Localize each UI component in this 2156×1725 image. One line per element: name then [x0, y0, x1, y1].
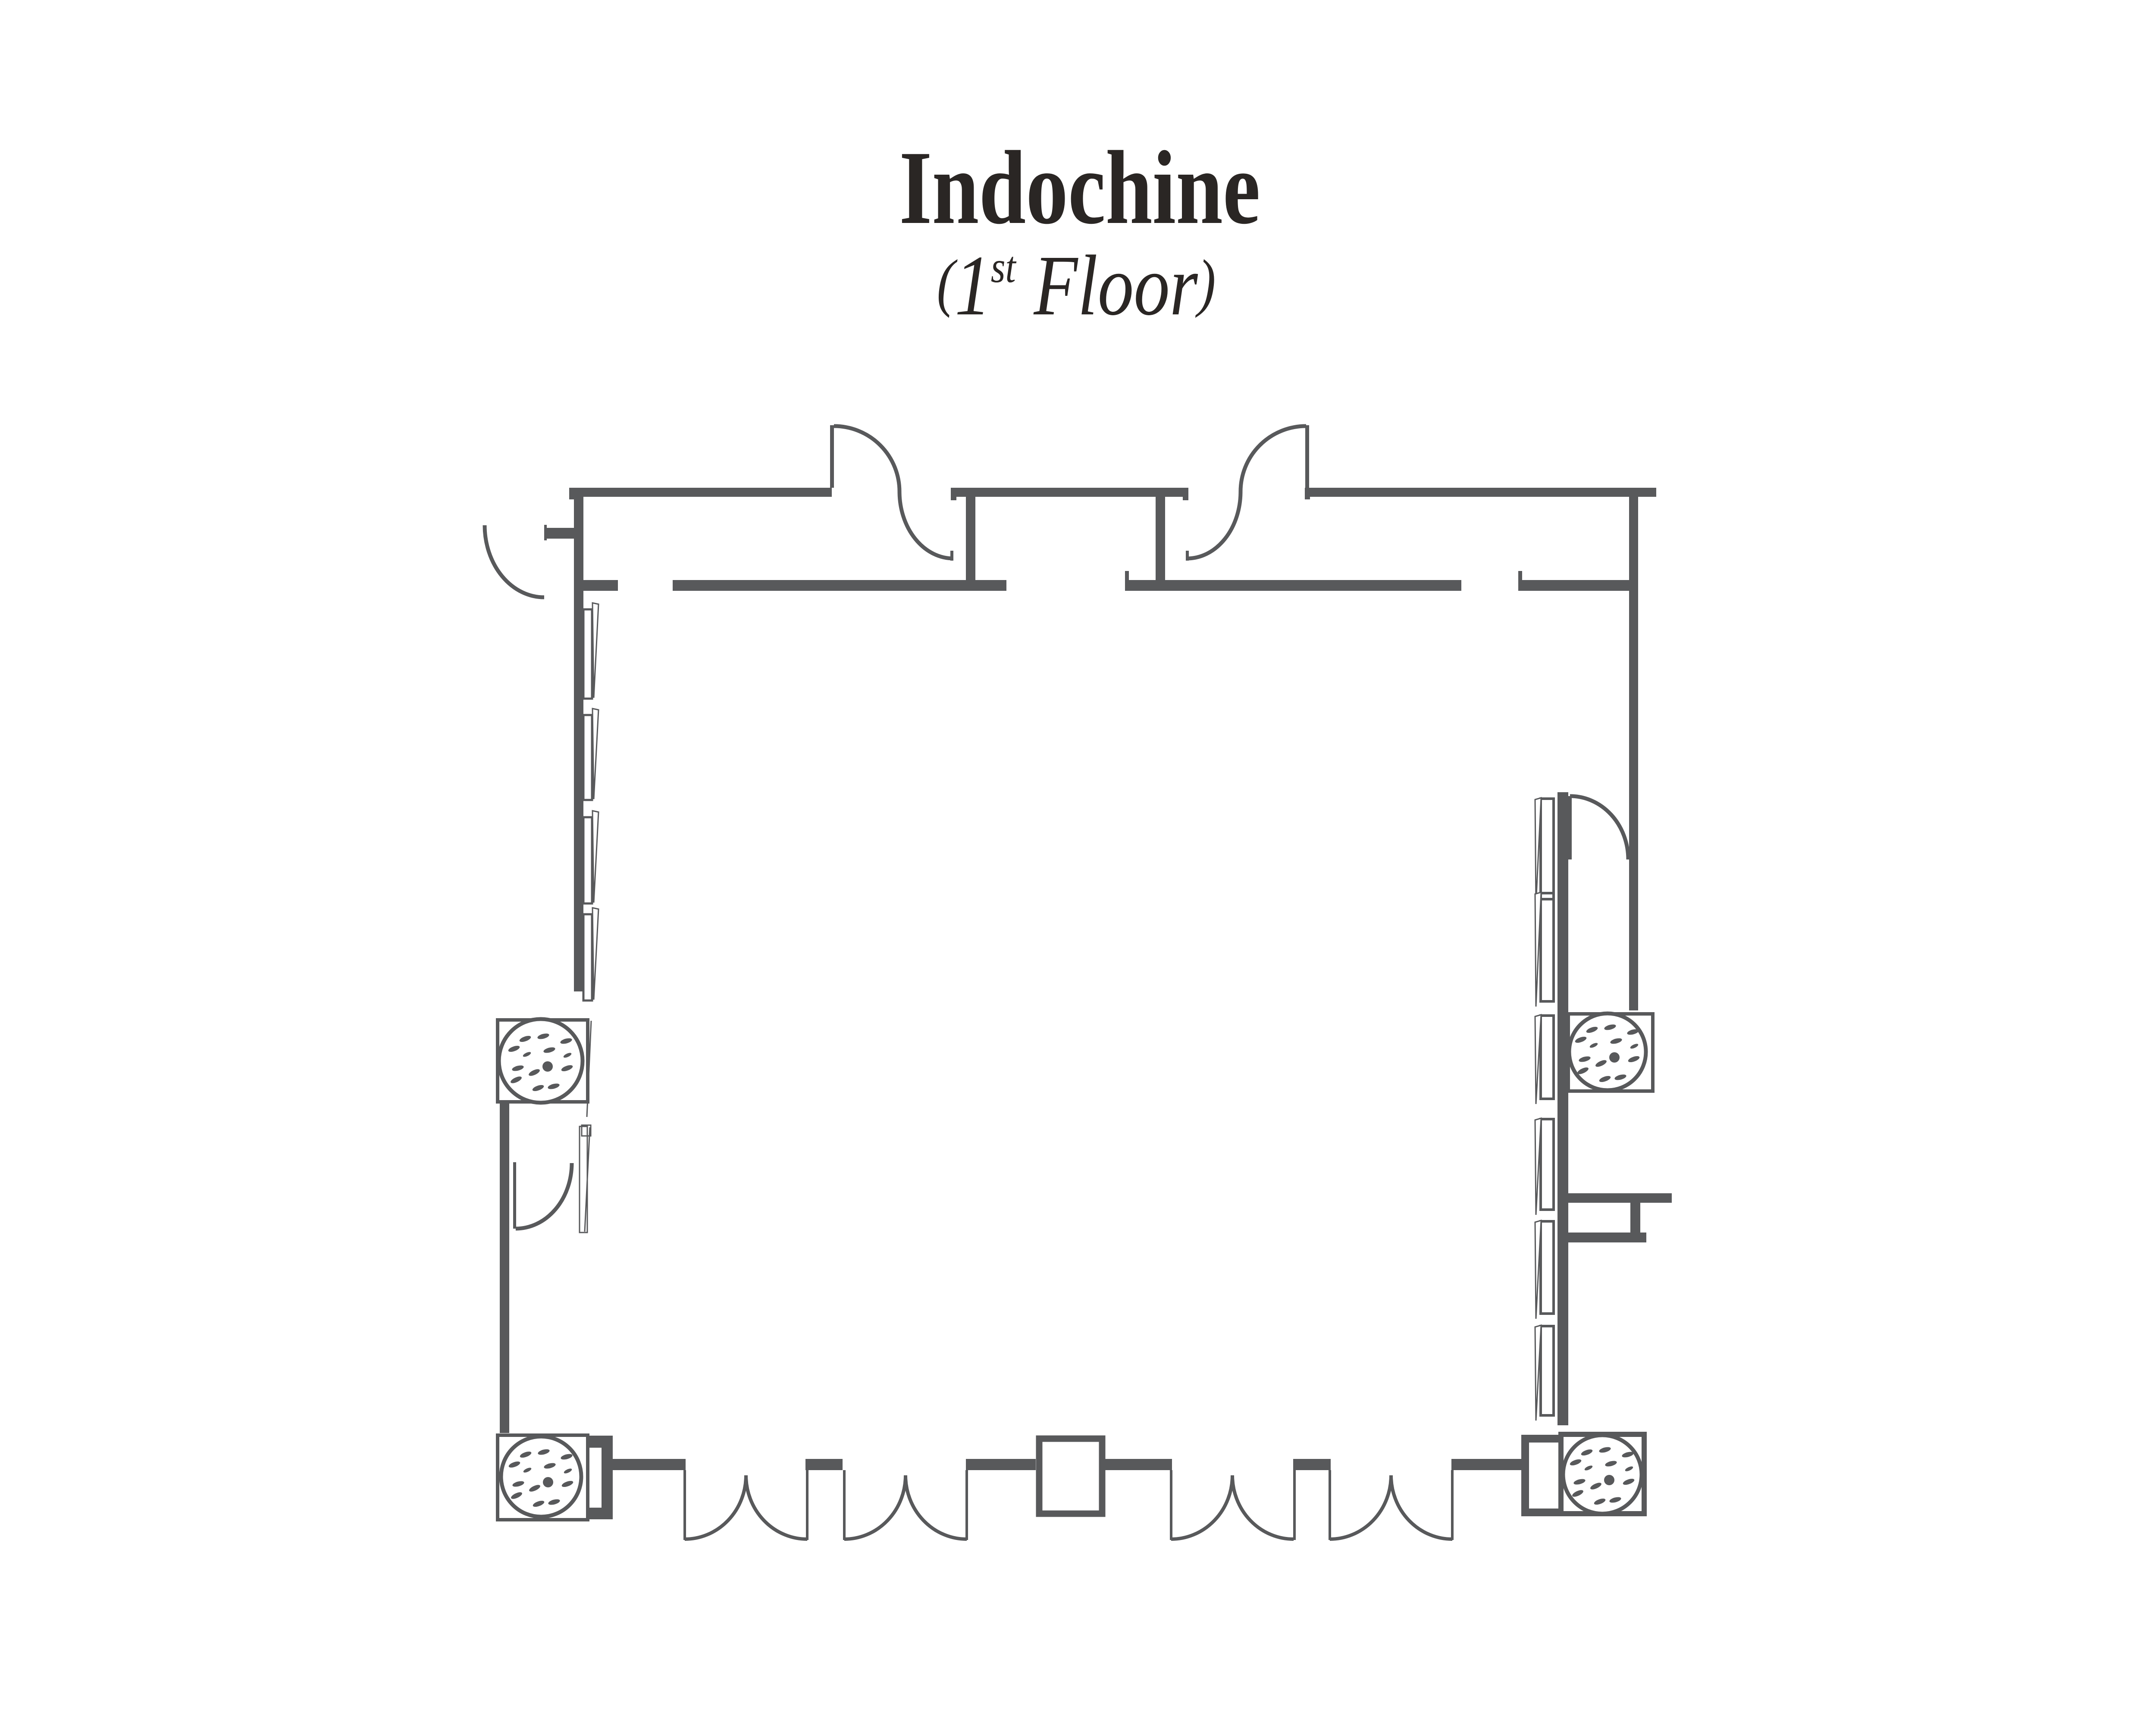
svg-text:(1st Floor): (1st Floor): [937, 238, 1216, 333]
svg-text:Indochine: Indochine: [899, 129, 1260, 246]
